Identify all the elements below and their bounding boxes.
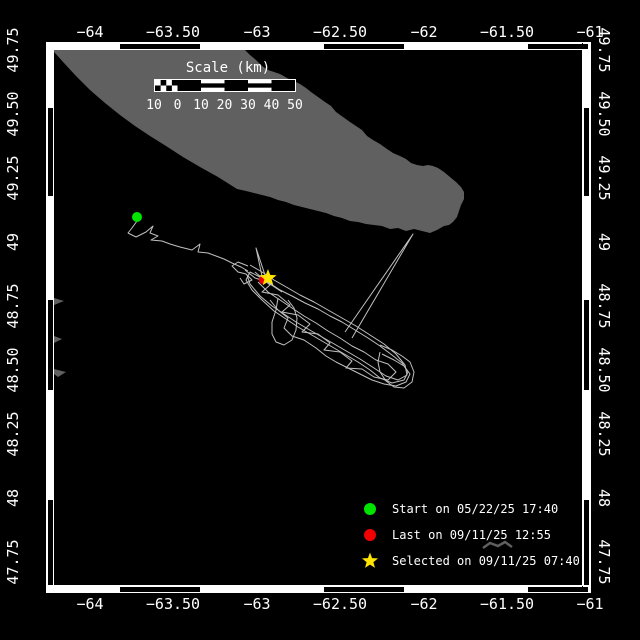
lat-label-right: 48.75: [595, 283, 613, 328]
lat-label-left: 48.50: [4, 347, 22, 392]
legend-label: Start on 05/22/25 17:40: [392, 502, 558, 516]
lat-label-left: 48.25: [4, 411, 22, 456]
start-position-marker[interactable]: [132, 212, 142, 222]
lon-label-bottom: −64: [76, 595, 103, 613]
track-path[interactable]: [128, 221, 248, 271]
scale-bar-graphic: [154, 79, 297, 93]
lat-label-left: 49.75: [4, 27, 22, 72]
legend-label: Last on 09/11/25 12:55: [392, 528, 551, 542]
lon-label-bottom: −62: [410, 595, 437, 613]
lat-label-right: 48.50: [595, 347, 613, 392]
lat-label-right: 48.25: [595, 411, 613, 456]
lon-label-top: −62.50: [313, 23, 367, 41]
track-path[interactable]: [245, 270, 408, 383]
scale-bar-tick-label: 30: [240, 98, 256, 113]
lon-label-top: −64: [76, 23, 103, 41]
legend-item: Selected on 09/11/25 07:40: [0, 551, 640, 571]
dot-icon: [360, 525, 380, 545]
legend-item: Start on 05/22/25 17:40: [0, 499, 640, 519]
track-path[interactable]: [272, 298, 297, 345]
track-map-window: −64−64−63.50−63.50−63−63−62.50−62.50−62−…: [0, 0, 640, 640]
lat-label-right: 49.50: [595, 91, 613, 136]
scale-bar-tick-label: 50: [287, 98, 303, 113]
map-features: [52, 50, 512, 548]
lat-label-left: 49: [4, 233, 22, 251]
lon-label-bottom: −62.50: [313, 595, 367, 613]
lon-label-top: −61.50: [480, 23, 534, 41]
scale-bar-title: Scale (km): [186, 60, 270, 76]
lat-label-right: 49: [595, 233, 613, 251]
lat-label-left: 49.25: [4, 155, 22, 200]
scale-bar-tick-label: 40: [264, 98, 280, 113]
track-path[interactable]: [270, 300, 410, 386]
coast-fragment: [54, 336, 62, 343]
lon-label-top: −63: [243, 23, 270, 41]
dot-icon: [360, 499, 380, 519]
scale-bar: Scale (km) 1001020304050: [150, 58, 320, 120]
lon-label-bottom: −63.50: [146, 595, 200, 613]
lon-label-top: −63.50: [146, 23, 200, 41]
legend-item: Last on 09/11/25 12:55: [0, 525, 640, 545]
star-icon: [360, 551, 380, 571]
legend-label: Selected on 09/11/25 07:40: [392, 554, 580, 568]
lat-label-right: 49.25: [595, 155, 613, 200]
coast-fragment: [54, 369, 66, 377]
track-path[interactable]: [256, 248, 266, 278]
scale-bar-tick-label: 20: [217, 98, 233, 113]
lon-label-bottom: −61: [576, 595, 603, 613]
lat-label-left: 49.50: [4, 91, 22, 136]
lon-label-bottom: −63: [243, 595, 270, 613]
scale-bar-tick-label: 0: [174, 98, 182, 113]
track-path[interactable]: [345, 234, 413, 338]
lon-label-bottom: −61.50: [480, 595, 534, 613]
lat-label-right: 49.75: [595, 27, 613, 72]
coast-fragment: [54, 298, 64, 305]
scale-bar-tick-label: 10: [193, 98, 209, 113]
lon-label-top: −62: [410, 23, 437, 41]
scale-bar-tick-label: 10: [146, 98, 162, 113]
lat-label-left: 48.75: [4, 283, 22, 328]
